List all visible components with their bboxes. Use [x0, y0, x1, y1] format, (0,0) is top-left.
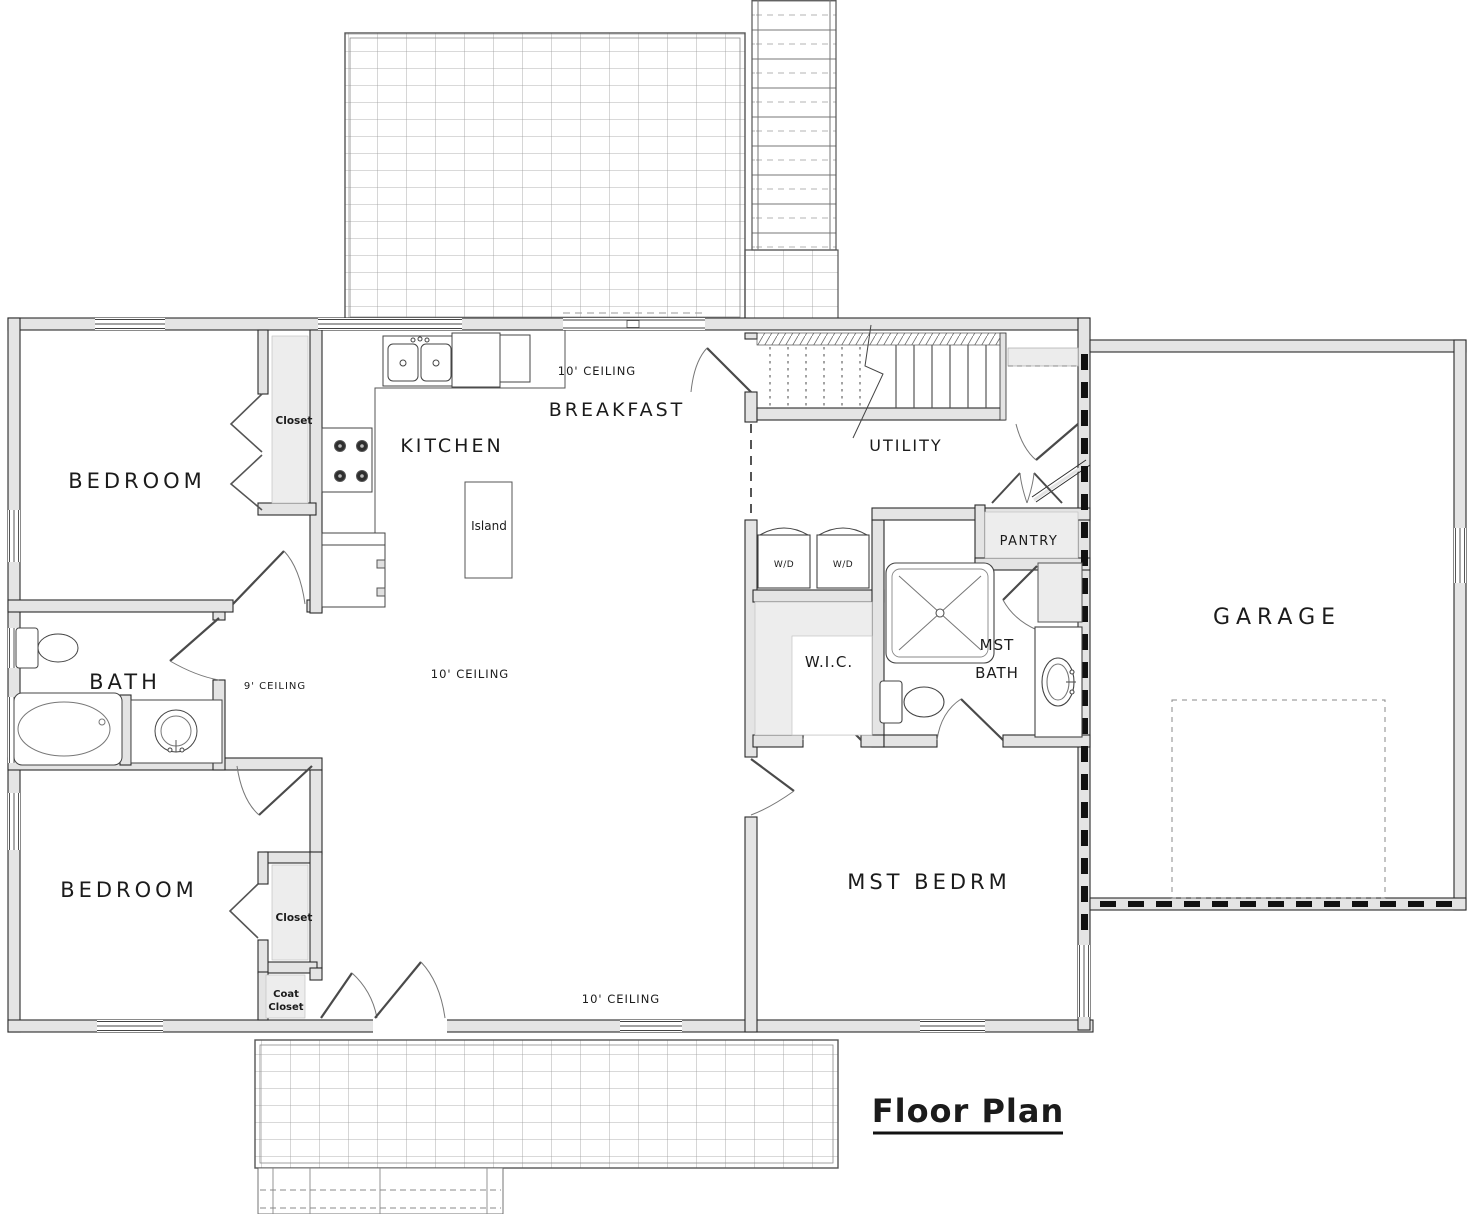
washer	[758, 528, 810, 588]
label-garage: GARAGE	[1213, 605, 1341, 630]
label-ceiling-hall: 9' CEILING	[244, 681, 306, 692]
window	[8, 793, 20, 850]
window	[620, 1020, 682, 1032]
wall-garage-north	[1090, 340, 1466, 352]
refrigerator	[452, 333, 530, 387]
label-mst-bath-1: MST	[980, 636, 1015, 654]
bottom-deck-stairs	[258, 1168, 503, 1214]
dryer	[817, 528, 869, 588]
floor-plan-canvas: BEDROOM Closet KITCHEN 10' CEILING BREAK…	[0, 0, 1471, 1214]
label-island: Island	[471, 519, 507, 533]
window	[920, 1020, 985, 1032]
label-bedroom-bottom: BEDROOM	[60, 878, 198, 902]
bathtub	[14, 693, 122, 765]
label-washer: W/D	[774, 560, 794, 570]
bath-fixtures	[14, 628, 222, 765]
kitchen-fixtures	[322, 330, 565, 607]
label-bath: BATH	[89, 670, 161, 694]
label-ceiling-breakfast: 10' CEILING	[558, 364, 636, 378]
bath-vanity-sink	[131, 700, 222, 763]
laundry-units	[758, 528, 869, 588]
label-pantry: PANTRY	[1000, 534, 1059, 549]
window	[318, 318, 462, 330]
label-bedroom-top: BEDROOM	[68, 469, 206, 493]
label-mst-bedroom: MST BEDRM	[847, 870, 1011, 894]
window	[95, 318, 165, 330]
garage-slab-outline	[1172, 700, 1385, 898]
wall-garage-east	[1454, 340, 1466, 910]
label-wic: W.I.C.	[805, 653, 853, 671]
label-coat-closet-1: Coat	[273, 989, 299, 1000]
wall-west	[8, 318, 20, 1032]
floor-plan-drawing: BEDROOM Closet KITCHEN 10' CEILING BREAK…	[0, 0, 1471, 1214]
label-mst-bath-2: BATH	[975, 664, 1019, 682]
label-breakfast: BREAKFAST	[549, 399, 686, 421]
window	[1454, 528, 1466, 583]
label-dryer: W/D	[833, 560, 853, 570]
master-vanity-sink	[1035, 627, 1082, 737]
window	[8, 510, 20, 562]
top-deck-stairs	[752, 0, 836, 250]
range-stove	[322, 428, 372, 492]
label-closet-top: Closet	[276, 415, 313, 427]
shaded-areas	[266, 336, 1082, 1018]
label-closet-bottom: Closet	[276, 912, 313, 924]
wall-north	[8, 318, 1090, 330]
drawing-title: Floor Plan	[872, 1092, 1065, 1133]
linen-closet	[1038, 563, 1082, 622]
master-toilet	[880, 681, 944, 723]
walls	[8, 318, 1466, 1032]
windows	[8, 313, 1466, 1033]
kitchen-sink	[383, 336, 455, 386]
stair-landing	[1008, 348, 1078, 366]
bottom-deck	[255, 1040, 838, 1214]
label-coat-closet-2: Closet	[268, 1002, 303, 1013]
staircase	[757, 325, 1078, 438]
shower	[886, 563, 994, 663]
dishwasher	[322, 533, 385, 607]
label-ceiling-great-room: 10' CEILING	[431, 667, 509, 681]
top-deck	[345, 0, 838, 322]
window	[97, 1020, 163, 1032]
label-ceiling-south: 10' CEILING	[582, 992, 660, 1006]
label-utility: UTILITY	[869, 436, 942, 455]
title-text: Floor Plan	[872, 1092, 1065, 1130]
label-kitchen: KITCHEN	[400, 435, 503, 457]
front-door-opening	[373, 1019, 447, 1033]
window	[1078, 945, 1090, 1017]
toilet	[16, 628, 78, 668]
